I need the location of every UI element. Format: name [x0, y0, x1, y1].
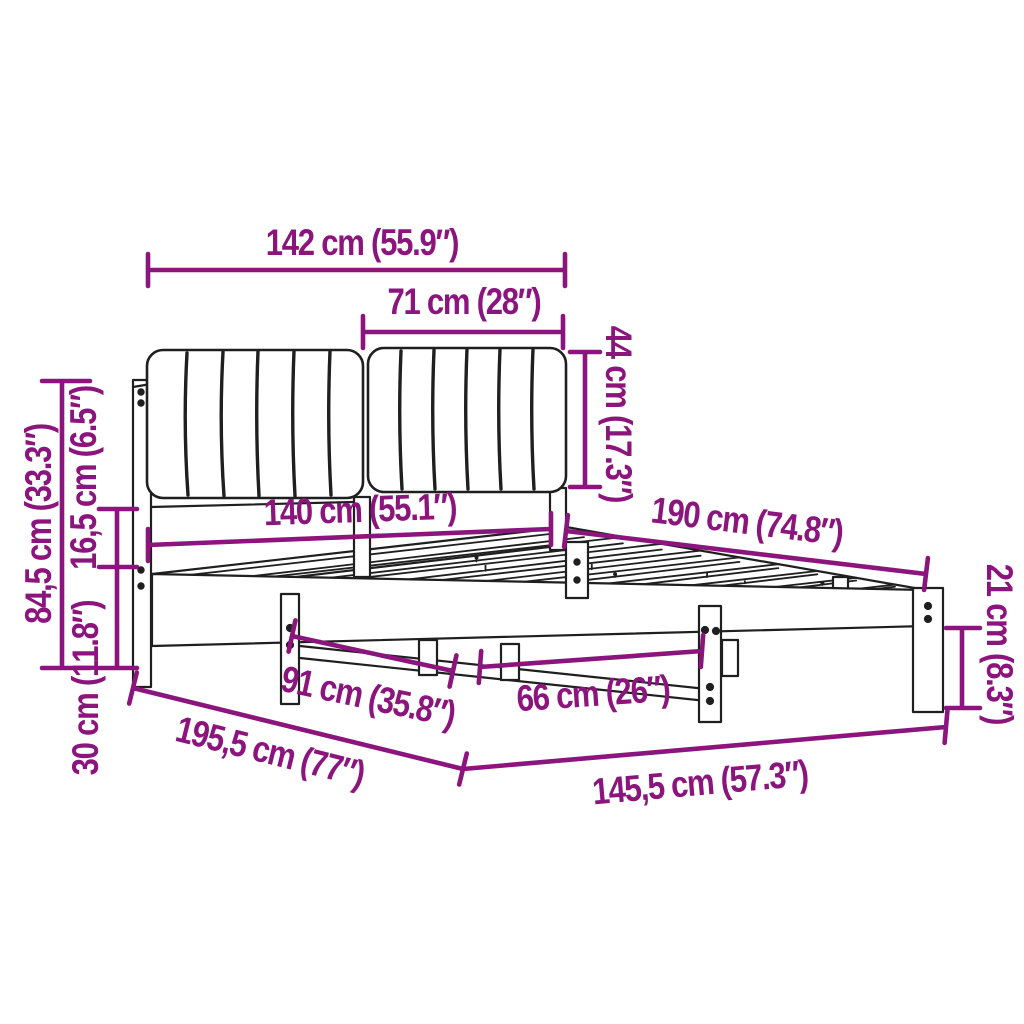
screw-icon [925, 616, 931, 622]
screw-icon [138, 567, 143, 572]
center-leg [419, 640, 437, 675]
headboard-cushion-right [368, 348, 566, 492]
front-side-rail [152, 574, 926, 646]
dim-label-21cm: 21 cm (8.3″) [978, 564, 1020, 724]
center-rail-bracket [722, 640, 738, 676]
slat-screw-icon [820, 581, 824, 585]
diagram-canvas: 142 cm (55.9″) 71 cm (28″) 44 cm (17.3″)… [0, 0, 1024, 1024]
dim-label-30cm: 30 cm (11.8″) [65, 601, 107, 776]
dim-label-140cm: 140 cm (55.1″) [263, 486, 457, 535]
screw-icon [138, 389, 143, 394]
headboard-cushion-left [147, 350, 363, 498]
slat-screw-icon [475, 556, 479, 560]
slat-screw-icon [613, 572, 617, 576]
dim-label-84-5cm: 84,5 cm (33.3″) [18, 424, 60, 624]
screw-icon [138, 583, 143, 588]
dim-line-44cm [570, 352, 600, 487]
screw-icon [138, 400, 143, 405]
dim-label-142cm: 142 cm (55.9″) [266, 222, 458, 264]
dim-line-21cm [946, 628, 980, 708]
dim-label-44cm: 44 cm (17.3″) [597, 326, 639, 502]
bed-frame-drawing [0, 0, 1024, 1024]
center-leg [501, 644, 519, 680]
dim-label-16-5cm: 16,5 cm (6.5″) [63, 386, 105, 570]
dim-label-71cm: 71 cm (28″) [387, 281, 540, 323]
screw-icon [574, 577, 579, 582]
screw-icon [707, 698, 713, 704]
screw-icon [707, 684, 713, 690]
foot-corner-leg [913, 588, 943, 712]
screw-icon [925, 603, 931, 609]
screw-icon [713, 628, 719, 634]
screw-icon [702, 627, 708, 633]
screw-icon [574, 559, 579, 564]
